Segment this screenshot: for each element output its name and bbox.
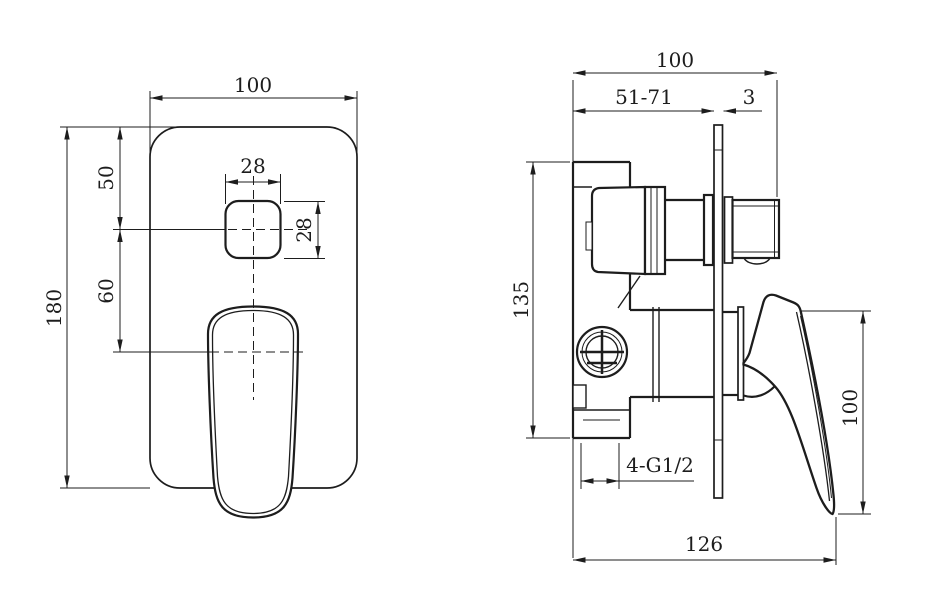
front-handle-outer-contour <box>208 307 298 518</box>
side-knob-flange <box>725 197 733 263</box>
side-dim-total-depth-label: 126 <box>685 532 723 556</box>
side-handle-outer-contour <box>744 295 835 514</box>
side-cartridge-barrel <box>630 307 714 402</box>
side-lever-handle <box>723 295 835 514</box>
side-dim-handle-height-label: 100 <box>838 389 862 427</box>
front-dim-button-width-label: 28 <box>240 154 265 178</box>
side-stem-flange <box>704 195 713 265</box>
side-wall-plate <box>714 125 723 498</box>
side-knob-body <box>733 200 780 258</box>
front-view <box>150 127 357 518</box>
side-diverter-assembly <box>586 187 713 274</box>
side-plate-profile <box>714 125 723 498</box>
technical-drawing: 100 180 50 60 28 28 100 51-71 3 135 100 … <box>0 0 925 600</box>
side-dim-depth-label: 100 <box>656 48 694 72</box>
front-lever-handle <box>208 307 298 518</box>
side-dim-body-height-label: 135 <box>509 281 533 319</box>
front-dim-height-label: 180 <box>42 289 66 327</box>
side-inlet-port <box>577 327 627 377</box>
front-dim-button-to-handle-label: 60 <box>94 278 118 303</box>
front-dim-top-to-button-label: 50 <box>94 165 118 190</box>
front-dim-width-label: 100 <box>234 73 272 97</box>
side-diverter-rings <box>645 187 665 274</box>
side-dim-plate-thickness-label: 3 <box>743 85 756 109</box>
side-diverter-frustum <box>592 187 645 274</box>
side-dim-installation-label: 51-71 <box>615 85 673 109</box>
side-frustum-tab <box>586 222 592 250</box>
side-view <box>573 125 834 514</box>
side-dim-connection-thread-label: 4-G1/2 <box>626 453 694 477</box>
side-hub-flange <box>738 307 744 400</box>
drawing-canvas: 100 180 50 60 28 28 100 51-71 3 135 100 … <box>0 0 925 600</box>
front-dim-button-height-label: 28 <box>292 217 316 242</box>
side-button-knob <box>725 197 780 264</box>
side-handle-hub-curve <box>744 387 775 397</box>
side-body-left-tab <box>573 385 586 408</box>
